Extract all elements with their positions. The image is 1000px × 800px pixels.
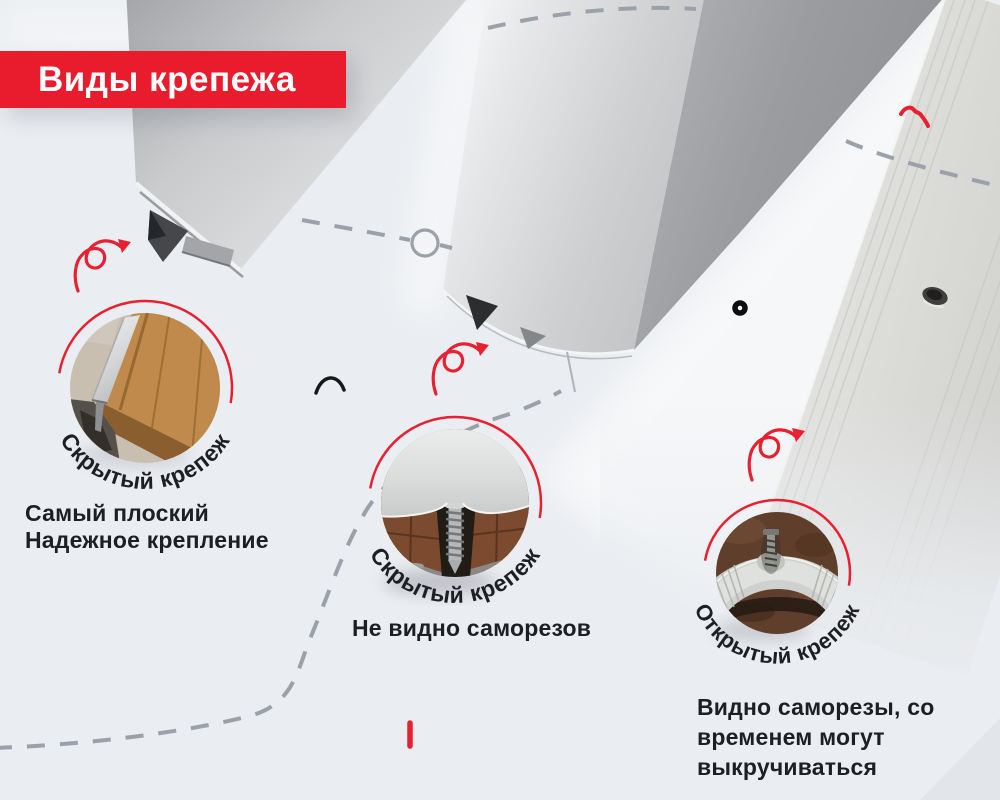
caption-line: Не видно саморезов xyxy=(352,615,591,642)
caption-line: временем могут xyxy=(697,722,934,752)
caption-line: Самый плоский xyxy=(25,500,269,527)
caption-line: выкручиваться xyxy=(697,752,934,782)
artwork-layer: Скрытый крепеж Скрытый крепеж Открытый к… xyxy=(0,0,1000,800)
caption-t-molding: Самый плоский Надежное крепление xyxy=(25,500,269,554)
banner-label: Виды крепежа xyxy=(38,60,296,100)
title-banner: Виды крепежа xyxy=(0,51,346,108)
infographic-canvas: Скрытый крепеж Скрытый крепеж Открытый к… xyxy=(0,0,1000,800)
caption-flat: Видно саморезы, со временем могут выкруч… xyxy=(697,692,934,782)
caption-line: Видно саморезы, со xyxy=(697,692,934,722)
caption-line: Надежное крепление xyxy=(25,527,269,554)
caption-dome: Не видно саморезов xyxy=(352,615,591,642)
